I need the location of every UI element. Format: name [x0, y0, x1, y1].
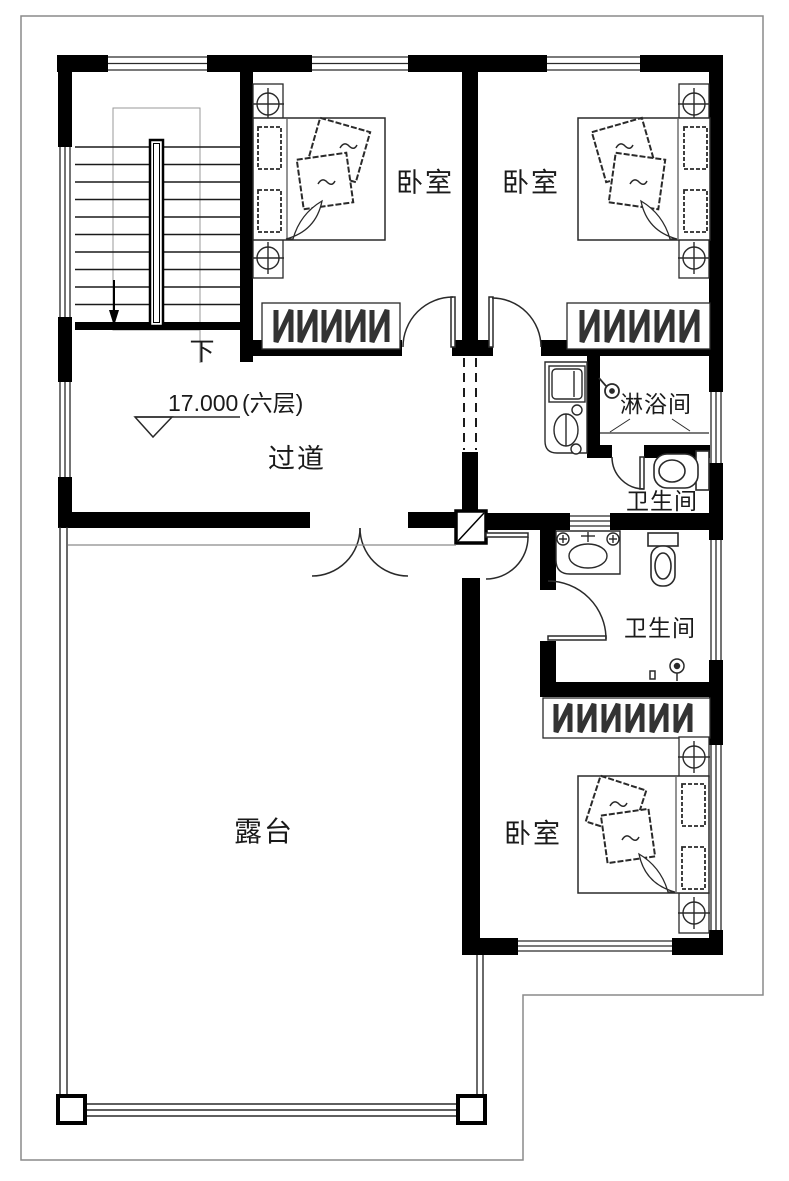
- shower-head-icon: [599, 378, 619, 398]
- window: [108, 57, 207, 70]
- staircase: 下: [75, 108, 240, 366]
- toilet: [648, 533, 678, 586]
- elevation-marker: 17.000 (六层): [135, 390, 303, 437]
- window: [711, 745, 721, 930]
- bed: [578, 118, 710, 240]
- bathroom-lower: 卫生间: [556, 531, 696, 681]
- room-label-bedroom-bottom: 卧室: [504, 819, 562, 849]
- bathroom-upper: 卫生间: [626, 451, 709, 514]
- wardrobe: [567, 303, 710, 349]
- stair-direction-label: 下: [189, 338, 214, 366]
- window: [518, 941, 672, 951]
- column: [456, 511, 486, 543]
- floor-plan-page: 下 17.000 (六层): [0, 0, 789, 1181]
- window: [60, 382, 70, 477]
- door-bathroom-lower: [548, 581, 606, 640]
- floor-plan-canvas: 下 17.000 (六层): [0, 0, 789, 1181]
- bed: [253, 118, 385, 240]
- room-label-bathroom-upper: 卫生间: [626, 488, 698, 514]
- overhead-beam-dashed: [464, 358, 476, 450]
- laundry-sink-unit: [545, 362, 587, 454]
- room-label-bedroom-top-right: 卧室: [502, 168, 560, 198]
- terrace-post: [58, 1096, 85, 1123]
- door-bathroom-upper: [612, 457, 644, 489]
- elevation-floor: (六层): [242, 390, 303, 416]
- room-label-bathroom-lower: 卫生间: [624, 615, 696, 641]
- window: [60, 147, 70, 317]
- bedroom-bottom: 卧室: [504, 698, 710, 933]
- door-bedroom-top-left: [403, 297, 455, 347]
- elevation-triangle-icon: [135, 417, 172, 437]
- room-label-corridor: 过道: [268, 444, 326, 474]
- room-label-shower: 淋浴间: [620, 391, 692, 417]
- window: [711, 392, 721, 463]
- stair-handrail: [150, 140, 163, 326]
- terrace: 露台: [58, 527, 485, 1123]
- door-terrace-double: [312, 528, 408, 576]
- bed: [578, 776, 709, 893]
- bedroom-top-left: 卧室: [252, 84, 454, 349]
- washing-machine: [549, 366, 585, 402]
- shower-room: 淋浴间: [599, 378, 709, 433]
- room-label-bedroom-top-left: 卧室: [396, 168, 454, 198]
- door-vestibule: [486, 533, 528, 579]
- window: [547, 57, 640, 70]
- room-label-terrace: 露台: [234, 816, 294, 847]
- toilet: [654, 451, 709, 490]
- window: [312, 57, 408, 70]
- vanity-sink: [556, 531, 620, 574]
- window: [570, 516, 610, 526]
- terrace-post: [458, 1096, 485, 1123]
- bedroom-top-right: 卧室: [502, 84, 710, 349]
- elevation-value: 17.000: [168, 390, 238, 416]
- wardrobe: [262, 303, 400, 349]
- wardrobe: [543, 698, 710, 738]
- door-bedroom-top-right: [489, 297, 541, 347]
- sprinkler-icon: [650, 659, 684, 681]
- window: [711, 540, 721, 660]
